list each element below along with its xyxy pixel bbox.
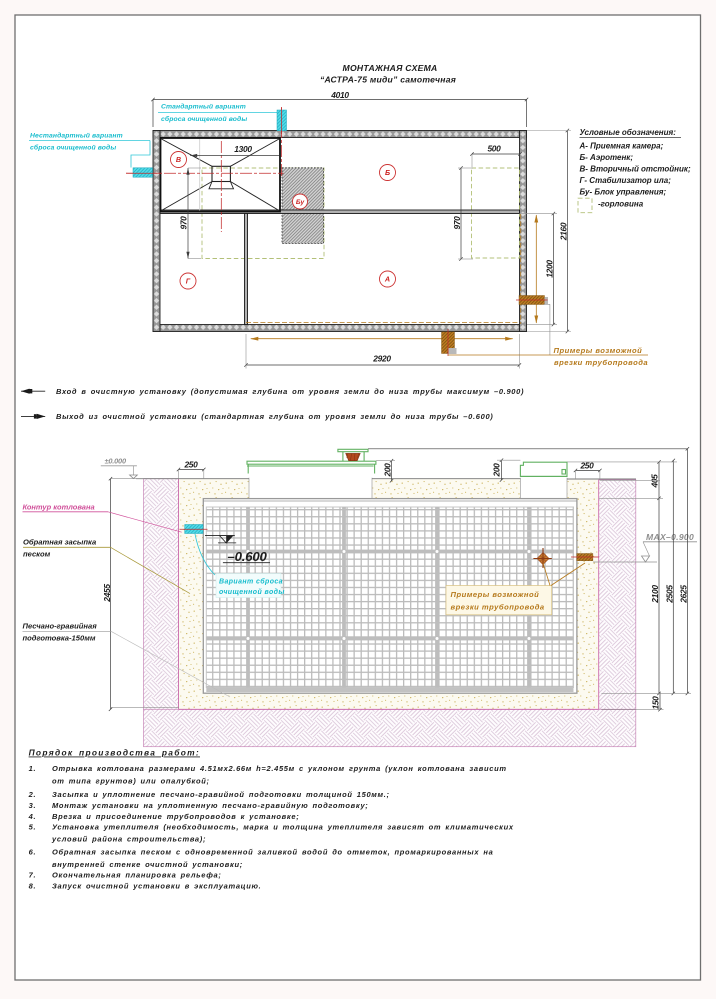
svg-text:970: 970 — [452, 216, 462, 230]
svg-text:“АСТРА-75 миди” самотечная: “АСТРА-75 миди” самотечная — [320, 75, 456, 85]
svg-text:2505: 2505 — [664, 585, 674, 604]
svg-text:250: 250 — [183, 460, 198, 470]
svg-text:1.: 1. — [29, 764, 37, 773]
svg-text:Обратная засыпка песком с одно: Обратная засыпка песком с одновременной … — [52, 848, 493, 857]
svg-text:±0.000: ±0.000 — [105, 457, 127, 466]
svg-text:А- Приемная камера;: А- Приемная камера; — [579, 142, 664, 151]
svg-text:Порядок производства работ:: Порядок производства работ: — [29, 748, 200, 758]
svg-text:2455: 2455 — [102, 584, 112, 603]
svg-text:2100: 2100 — [650, 585, 660, 604]
svg-text:4.: 4. — [28, 812, 37, 821]
svg-text:МАХ–0.900: МАХ–0.900 — [646, 532, 694, 542]
svg-text:405: 405 — [650, 474, 660, 489]
svg-text:3.: 3. — [29, 801, 37, 810]
svg-text:Стандартный вариант: Стандартный вариант — [161, 103, 246, 111]
svg-text:Обратная засыпка: Обратная засыпка — [23, 538, 96, 547]
svg-text:200: 200 — [492, 463, 502, 478]
svg-text:2.: 2. — [28, 790, 37, 799]
svg-text:внутренней стенке очистной уст: внутренней стенке очистной установки; — [52, 860, 243, 869]
svg-text:Врезка и присоединение трубопр: Врезка и присоединение трубопроводов к у… — [52, 812, 299, 821]
svg-text:2160: 2160 — [559, 222, 569, 241]
svg-text:А: А — [384, 275, 390, 284]
svg-text:В- Вторичный отстойник;: В- Вторичный отстойник; — [580, 165, 691, 174]
svg-text:Выход из очистной установки (с: Выход из очистной установки (стандартная… — [56, 412, 493, 421]
svg-text:Г: Г — [186, 277, 191, 286]
svg-text:1300: 1300 — [234, 144, 252, 154]
svg-text:Примеры возможной: Примеры возможной — [554, 346, 643, 355]
svg-text:Вариант сброса: Вариант сброса — [219, 578, 283, 586]
svg-text:Б: Б — [385, 168, 390, 177]
svg-text:Песчано-гравийная: Песчано-гравийная — [23, 622, 98, 631]
svg-text:–0.600: –0.600 — [228, 549, 268, 564]
svg-text:сброса очищенной воды: сброса очищенной воды — [30, 144, 116, 152]
svg-text:8.: 8. — [29, 882, 37, 891]
svg-text:очищенной воды: очищенной воды — [219, 588, 285, 596]
svg-text:Бу- Блок управления;: Бу- Блок управления; — [580, 188, 667, 197]
svg-text:МОНТАЖНАЯ СХЕМА: МОНТАЖНАЯ СХЕМА — [343, 63, 438, 73]
svg-text:подготовка-150мм: подготовка-150мм — [23, 634, 96, 643]
svg-text:Запуск очистной установки в эк: Запуск очистной установки в эксплуатацию… — [52, 882, 261, 891]
svg-text:В: В — [176, 155, 181, 164]
svg-text:песком: песком — [23, 550, 51, 559]
svg-text:Условные обозначения:: Условные обозначения: — [580, 128, 677, 137]
svg-text:2920: 2920 — [372, 354, 391, 364]
svg-text:1200: 1200 — [544, 260, 554, 278]
svg-text:Вход в очистную установку (доп: Вход в очистную установку (допустимая гл… — [56, 387, 524, 396]
svg-text:150: 150 — [650, 696, 660, 710]
svg-text:Отрывка котлована размерами 4.: Отрывка котлована размерами 4.51мх2.66м … — [52, 764, 507, 773]
svg-text:Б- Аэротенк;: Б- Аэротенк; — [580, 153, 634, 162]
svg-text:Окончательная планировка релье: Окончательная планировка рельефа; — [52, 871, 222, 880]
svg-text:Г- Стабилизатор ила;: Г- Стабилизатор ила; — [580, 176, 672, 185]
svg-text:врезки трубопровода: врезки трубопровода — [554, 358, 648, 367]
svg-text:2625: 2625 — [678, 585, 688, 604]
svg-text:Засыпка и уплотнение песчано-г: Засыпка и уплотнение песчано-гравийной п… — [52, 790, 390, 799]
svg-text:7.: 7. — [29, 871, 37, 880]
svg-text:от типа грунтов) или опалубкой: от типа грунтов) или опалубкой; — [52, 777, 210, 786]
svg-text:970: 970 — [178, 216, 188, 230]
svg-text:500: 500 — [487, 144, 501, 154]
svg-text:Бу: Бу — [296, 199, 305, 206]
svg-text:200: 200 — [383, 463, 393, 478]
svg-text:врезки трубопровода: врезки трубопровода — [451, 603, 545, 612]
svg-text:Примеры возможной: Примеры возможной — [451, 590, 540, 599]
svg-text:-горловина: -горловина — [598, 200, 644, 209]
svg-text:5.: 5. — [29, 823, 37, 832]
svg-text:условий района строительства);: условий района строительства); — [51, 835, 206, 844]
svg-text:6.: 6. — [29, 848, 37, 857]
svg-text:4010: 4010 — [330, 90, 349, 100]
svg-text:сброса очищенной воды: сброса очищенной воды — [161, 115, 247, 123]
svg-text:Контур котлована: Контур котлована — [23, 503, 95, 512]
svg-text:Установка утеплителя (необходи: Установка утеплителя (необходимость, мар… — [52, 823, 514, 832]
svg-text:Нестандартный вариант: Нестандартный вариант — [30, 132, 123, 140]
svg-text:Монтаж установки на уплотненну: Монтаж установки на уплотненную песчано-… — [52, 801, 368, 810]
